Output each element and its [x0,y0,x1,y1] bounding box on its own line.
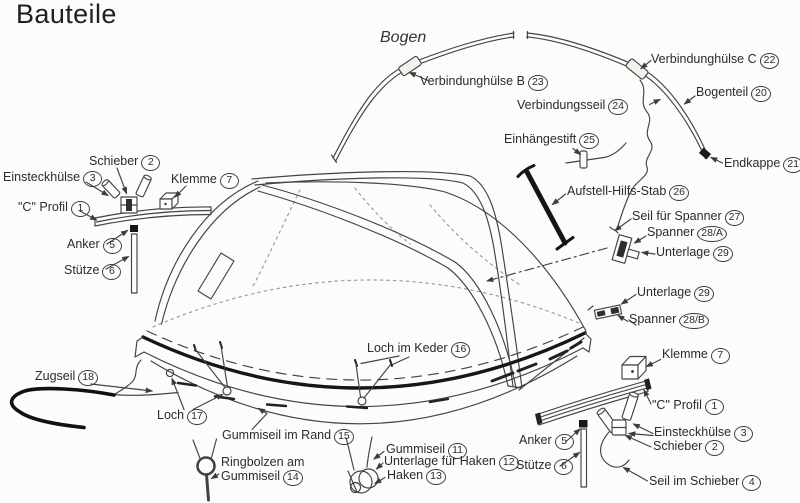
spanner-b-detail [588,305,636,325]
diagram-canvas [0,0,800,503]
right-profile-assembly [535,357,652,488]
bogen-arc-drawing [332,32,712,250]
haken-detail [346,437,378,493]
ring-base-drawing [135,327,591,424]
leader-lines [80,61,723,484]
einhaengestift-part [580,151,587,168]
ringbolzen-detail [193,439,217,500]
diagram-stage: Bauteile [0,0,800,503]
verbindungsseil-rope [617,80,652,229]
dome-drawing [153,172,586,390]
aufstell-hilfs-stab-part [518,166,573,250]
leader-lines-plain [361,356,409,365]
zugseil-rope [12,360,178,428]
